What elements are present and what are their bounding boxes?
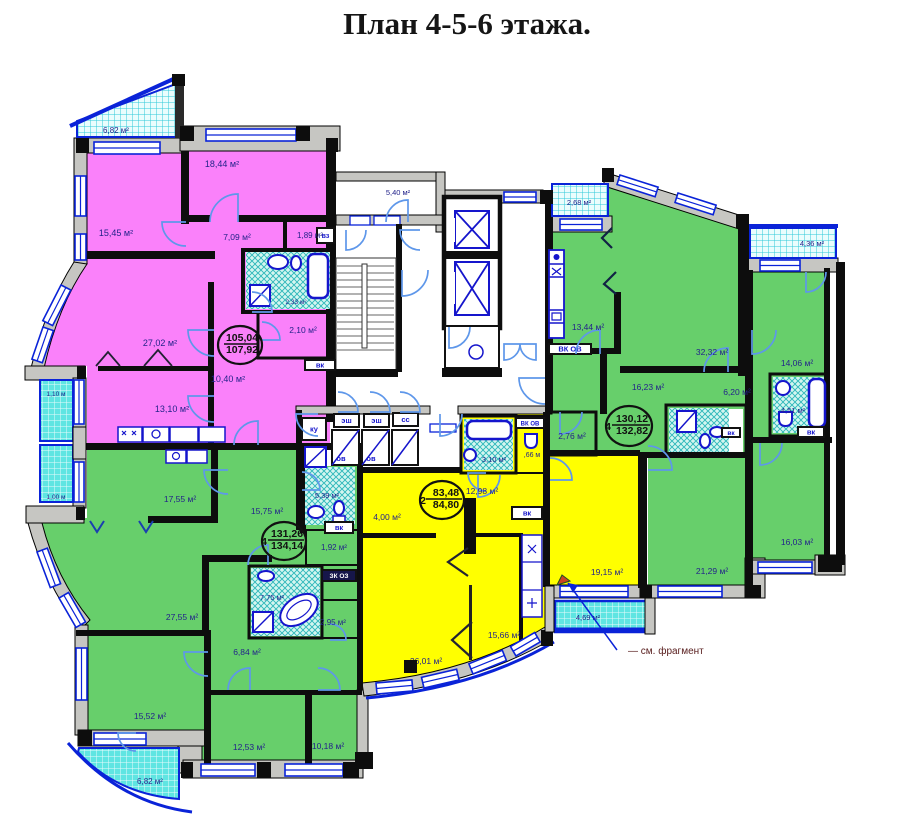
svg-text:84,80: 84,80 — [433, 499, 459, 511]
svg-text:18,44 м²: 18,44 м² — [205, 159, 239, 169]
svg-text:6,84 м²: 6,84 м² — [233, 647, 261, 657]
svg-text:1,89 м²: 1,89 м² — [297, 231, 323, 240]
svg-text:сс: сс — [401, 415, 409, 424]
svg-text:107,92: 107,92 — [226, 344, 258, 356]
svg-text:1,00 м: 1,00 м — [47, 494, 66, 501]
svg-text:ВК ОВ: ВК ОВ — [558, 345, 582, 354]
svg-text:ов: ов — [366, 454, 376, 463]
svg-text:21,29 м²: 21,29 м² — [696, 566, 728, 576]
svg-text:10,40 м²: 10,40 м² — [211, 374, 245, 384]
svg-text:,66 м: ,66 м — [524, 452, 541, 459]
svg-text:12,98 м²: 12,98 м² — [466, 486, 498, 496]
svg-text:4,36 м²: 4,36 м² — [800, 239, 825, 248]
svg-text:12,53 м²: 12,53 м² — [233, 742, 265, 752]
svg-text:2,10 м²: 2,10 м² — [289, 325, 317, 335]
svg-text:вк: вк — [335, 523, 344, 532]
svg-text:вк: вк — [727, 430, 735, 437]
svg-text:2,95 м²: 2,95 м² — [320, 618, 346, 627]
svg-text:83,48: 83,48 — [433, 487, 459, 499]
svg-text:15,75 м²: 15,75 м² — [251, 506, 283, 516]
svg-text:131,26: 131,26 — [271, 528, 303, 540]
svg-text:6,20 м²: 6,20 м² — [723, 387, 751, 397]
svg-text:15,45 м²: 15,45 м² — [99, 228, 133, 238]
svg-text:1,10 м: 1,10 м — [47, 391, 66, 398]
svg-text:эш: эш — [371, 416, 381, 425]
svg-text:130,12: 130,12 — [616, 413, 648, 425]
svg-text:3,10 м²: 3,10 м² — [482, 455, 507, 464]
svg-text:вк: вк — [316, 361, 325, 370]
svg-text:План 4-5-6 этажа.: План 4-5-6 этажа. — [343, 6, 591, 41]
svg-text:— см. фрагмент: — см. фрагмент — [628, 645, 704, 657]
svg-text:13,44 м²: 13,44 м² — [572, 322, 604, 332]
svg-text:2,33 м²: 2,33 м² — [285, 299, 307, 306]
svg-text:17,55 м²: 17,55 м² — [164, 494, 196, 504]
svg-text:4: 4 — [605, 421, 611, 433]
svg-text:ВК ОВ: ВК ОВ — [521, 422, 540, 428]
svg-text:6,82 м²: 6,82 м² — [137, 777, 163, 786]
svg-text:4,00 м²: 4,00 м² — [373, 512, 401, 522]
svg-text:15,66 м²: 15,66 м² — [488, 630, 520, 640]
svg-text:27,02 м²: 27,02 м² — [143, 338, 177, 348]
svg-text:14,06 м²: 14,06 м² — [781, 358, 813, 368]
svg-text:19,15 м²: 19,15 м² — [591, 567, 623, 577]
svg-text:ов: ов — [336, 454, 346, 463]
svg-text:5,40 м²: 5,40 м² — [386, 188, 411, 197]
svg-text:5,39 м²: 5,39 м² — [315, 491, 340, 500]
svg-text:ку: ку — [310, 425, 319, 434]
svg-text:ЗК ОЗ: ЗК ОЗ — [330, 573, 349, 580]
svg-text:2,68 м²: 2,68 м² — [567, 198, 592, 207]
svg-text:4,51 м²: 4,51 м² — [781, 406, 806, 415]
svg-text:2: 2 — [420, 495, 426, 507]
svg-text:вк: вк — [523, 509, 532, 518]
svg-text:27,55 м²: 27,55 м² — [166, 612, 198, 622]
svg-text:6,82 м²: 6,82 м² — [103, 126, 129, 135]
svg-text:10,18 м²: 10,18 м² — [312, 741, 344, 751]
svg-text:эш: эш — [341, 416, 351, 425]
svg-text:4: 4 — [261, 536, 267, 548]
svg-text:132,82: 132,82 — [616, 425, 648, 437]
svg-text:1,92 м²: 1,92 м² — [321, 543, 347, 552]
svg-text:32,32 м²: 32,32 м² — [696, 347, 728, 357]
svg-text:4,69 м²: 4,69 м² — [576, 613, 601, 622]
svg-text:134,14: 134,14 — [271, 540, 303, 552]
svg-text:вк: вк — [807, 428, 816, 437]
svg-text:15,52 м²: 15,52 м² — [134, 711, 166, 721]
svg-text:105,04: 105,04 — [226, 332, 258, 344]
svg-text:7,75 м²: 7,75 м² — [260, 593, 285, 602]
svg-text:7,09 м²: 7,09 м² — [223, 232, 251, 242]
svg-text:13,10 м²: 13,10 м² — [155, 404, 189, 414]
svg-text:16,03 м²: 16,03 м² — [781, 537, 813, 547]
svg-text:2,76 м²: 2,76 м² — [558, 431, 586, 441]
svg-text:16,23 м²: 16,23 м² — [632, 382, 664, 392]
